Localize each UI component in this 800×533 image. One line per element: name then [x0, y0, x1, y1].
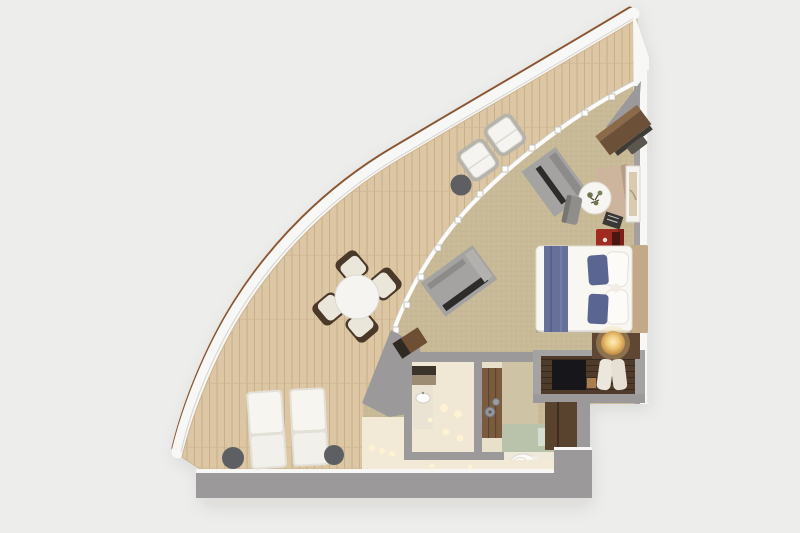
double-bed	[536, 245, 648, 333]
bed-pillow-white	[605, 251, 629, 286]
bathroom-door	[482, 368, 502, 438]
bathroom-top-wall	[398, 352, 538, 362]
bed-pillow-blue	[587, 254, 609, 285]
outdoor-dining-table	[335, 275, 379, 319]
bathroom-left-wall	[404, 352, 412, 458]
floor-plan-canvas	[0, 0, 800, 533]
coffee-table	[579, 182, 611, 214]
wall-art	[626, 166, 640, 222]
bedside-lamp	[601, 331, 625, 355]
bathroom-bottom-wall	[404, 452, 504, 460]
floor-plan-render	[0, 0, 800, 533]
bed-pillow-white	[605, 290, 628, 325]
headboard	[630, 245, 648, 333]
lounger-side-table	[222, 447, 244, 469]
sun-lounger	[289, 387, 329, 467]
bed-pillow-blue	[587, 293, 609, 324]
wardrobe	[533, 350, 645, 456]
bathroom-divider-wall	[474, 362, 482, 458]
entry-hall-wall	[502, 362, 538, 424]
lounger-side-table	[324, 445, 344, 465]
bathroom	[398, 352, 554, 472]
wardrobe-tv	[552, 360, 586, 390]
ground-shadow	[204, 498, 586, 505]
balcony-side-table	[451, 175, 472, 196]
sun-lounger	[246, 389, 287, 469]
closet	[545, 402, 577, 450]
bed-runner	[544, 246, 568, 332]
